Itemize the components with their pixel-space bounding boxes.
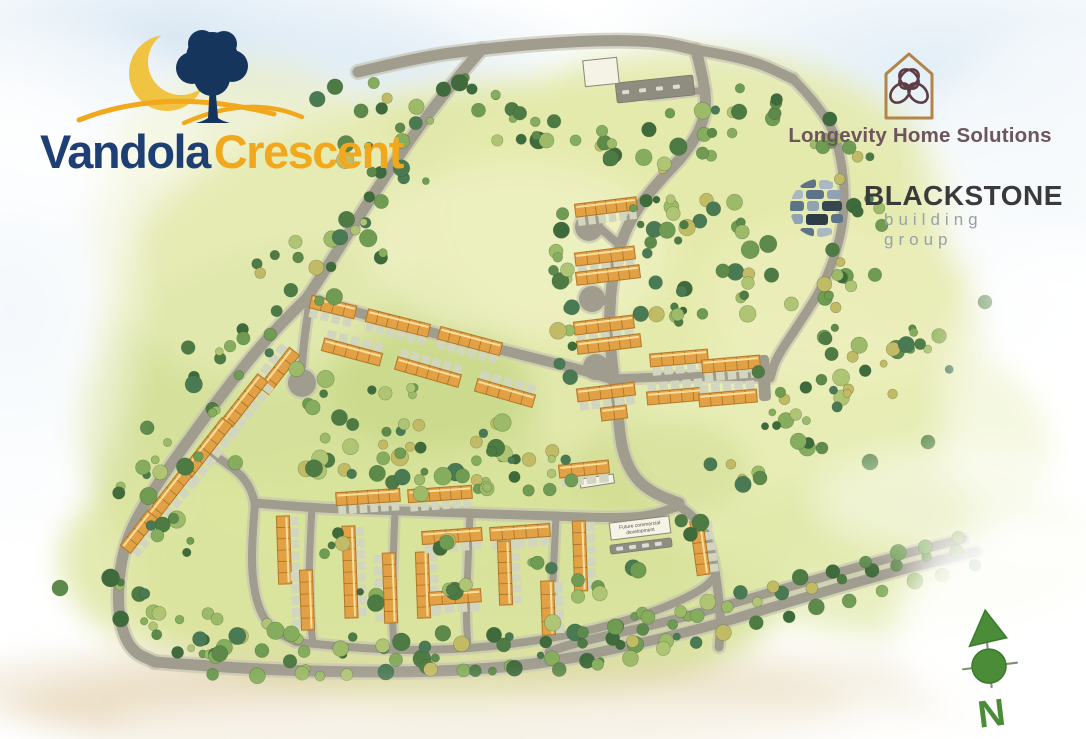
tree (208, 408, 217, 417)
blackstone-subtitle: building group (884, 210, 1058, 250)
driveway (745, 380, 754, 390)
tree (249, 668, 265, 684)
tree (151, 456, 159, 464)
tree (453, 636, 469, 652)
driveway (429, 575, 438, 583)
tree (898, 336, 914, 352)
tree (826, 243, 840, 257)
tree (741, 241, 759, 259)
tree (721, 601, 733, 613)
tree (52, 580, 68, 596)
tree (915, 339, 926, 350)
tree (319, 549, 329, 559)
tree (377, 452, 390, 465)
tree (265, 348, 274, 357)
tree (824, 291, 833, 300)
driveway (431, 501, 439, 511)
tree (819, 332, 832, 345)
tree (642, 122, 657, 137)
tree (659, 222, 676, 239)
tree (470, 436, 482, 448)
tree (228, 455, 243, 470)
tree (817, 277, 832, 292)
tree (426, 117, 433, 124)
tree (350, 225, 360, 235)
tree (187, 537, 194, 544)
tree (876, 585, 888, 597)
driveway (626, 395, 636, 405)
community-wordmark: VandolaCrescent (40, 124, 403, 179)
tree (378, 440, 388, 450)
blackstone-stone-circle-icon (788, 177, 852, 241)
tree (455, 469, 469, 483)
hill-swoosh (184, 107, 302, 123)
tree (532, 131, 541, 140)
driveway (291, 596, 300, 605)
tree (642, 248, 652, 258)
tree (656, 642, 670, 656)
driveway (357, 573, 366, 582)
driveway (579, 401, 589, 411)
tree (317, 370, 334, 387)
tree (706, 202, 720, 216)
tree (832, 269, 844, 281)
driveway (716, 371, 725, 381)
driveway (460, 541, 470, 551)
tree (540, 636, 552, 648)
tree (790, 409, 802, 421)
tree (379, 387, 393, 401)
driveway (578, 216, 586, 226)
tree (653, 196, 660, 203)
tree (446, 584, 458, 596)
tree (182, 548, 191, 557)
tree (694, 102, 711, 119)
tree (553, 222, 569, 238)
tree (522, 453, 536, 467)
tree (374, 194, 388, 208)
tree (193, 631, 208, 646)
stone-mosaic (789, 179, 843, 237)
tree (163, 438, 171, 446)
tree (673, 633, 680, 640)
tree (697, 308, 708, 319)
driveway (338, 505, 346, 515)
tree (716, 264, 730, 278)
tree (775, 387, 785, 397)
driveway (588, 215, 596, 225)
driveway (619, 211, 627, 221)
tree (293, 252, 304, 263)
tree (284, 283, 298, 297)
tree (516, 134, 526, 144)
tree (880, 360, 887, 367)
tree (539, 133, 554, 148)
tree (690, 637, 702, 649)
driveway (699, 384, 708, 394)
longevity-wordmark: Longevity Home Solutions (788, 124, 1052, 148)
tree (675, 606, 687, 618)
tree (674, 237, 682, 245)
driveway (290, 540, 299, 549)
longevity-home-solutions-logo: Longevity Home Solutions (788, 50, 1052, 152)
tree (759, 235, 776, 252)
tree (309, 260, 324, 275)
tree (752, 365, 765, 378)
tree (564, 300, 579, 315)
tree (592, 586, 607, 601)
tree (146, 520, 156, 530)
tree (193, 452, 203, 462)
tree (405, 442, 415, 452)
tree (767, 581, 779, 593)
tree (808, 599, 824, 615)
tree (136, 460, 151, 475)
tree (866, 153, 874, 161)
tree (414, 474, 425, 485)
tree (577, 626, 589, 638)
tree (224, 340, 236, 352)
tree (733, 585, 747, 599)
driveway (512, 595, 521, 603)
tree (825, 347, 838, 360)
site-building (583, 57, 620, 86)
tree (479, 429, 488, 438)
tree (832, 369, 849, 386)
community-name-secondary: Crescent (214, 125, 403, 178)
tree (409, 116, 422, 129)
tree (434, 467, 452, 485)
tree (726, 194, 742, 210)
tree (578, 638, 588, 648)
tree (471, 456, 481, 466)
compass-arrow (965, 608, 1007, 646)
tree (829, 386, 837, 394)
tree (890, 559, 902, 571)
driveway (431, 604, 442, 614)
tree (255, 268, 266, 279)
tree (347, 469, 357, 479)
tree (332, 229, 348, 245)
driveway (457, 603, 468, 613)
tree (704, 458, 717, 471)
driveway (704, 531, 714, 540)
driveway (374, 566, 383, 575)
tree (764, 268, 778, 282)
driveway (424, 544, 434, 554)
tree (424, 662, 438, 676)
driveway (587, 557, 596, 566)
tree (649, 276, 663, 290)
tree (741, 277, 754, 290)
driveway (709, 563, 719, 572)
driveway (391, 501, 399, 511)
tree (459, 578, 472, 591)
driveway (289, 517, 298, 526)
driveway (706, 542, 716, 551)
tree (783, 611, 795, 623)
tree (832, 402, 842, 412)
tree (592, 658, 604, 670)
tree (212, 645, 228, 661)
tree (140, 617, 148, 625)
quatrefoil-knot-icon (887, 66, 932, 107)
tree (792, 569, 808, 585)
driveway (734, 381, 743, 391)
driveway (357, 596, 366, 605)
tree (545, 562, 557, 574)
driveway (356, 550, 365, 559)
tree (392, 633, 410, 651)
tree (888, 389, 898, 399)
tree (851, 337, 867, 353)
driveway (355, 538, 364, 547)
driveway (444, 604, 455, 614)
tree (635, 149, 652, 166)
tree (554, 358, 565, 369)
tree (382, 93, 393, 104)
tree (543, 483, 556, 496)
driveway (739, 369, 748, 379)
tree (640, 194, 653, 207)
community-name-primary: Vandola (40, 125, 210, 178)
driveway (528, 537, 538, 547)
tree (267, 622, 284, 639)
driveway (659, 381, 668, 391)
tree (395, 448, 406, 459)
tree (735, 225, 749, 239)
driveway (585, 522, 594, 531)
driveway (587, 569, 596, 578)
tree (457, 664, 470, 677)
tree (113, 611, 129, 627)
tree (790, 433, 806, 449)
tree (389, 653, 402, 666)
tree (315, 671, 325, 681)
blackstone-name: BLACKSTONE (864, 180, 1063, 212)
tree (348, 632, 357, 641)
tree (816, 374, 827, 385)
tree (415, 442, 426, 453)
driveway (664, 365, 673, 375)
driveway (707, 553, 717, 562)
tree (333, 641, 349, 657)
driveway (682, 379, 691, 389)
townhouse-row (290, 570, 314, 631)
tree (172, 646, 184, 658)
driveway (512, 585, 521, 593)
driveway (512, 574, 521, 582)
driveway (349, 504, 357, 514)
tree (378, 664, 394, 680)
tree (726, 459, 736, 469)
tree (932, 329, 947, 344)
cul-de-sac (583, 354, 609, 380)
tree (560, 263, 574, 277)
tree (152, 606, 166, 620)
tree (168, 513, 178, 523)
tree (305, 460, 322, 477)
tree (707, 128, 717, 138)
tree (255, 644, 269, 658)
tree (531, 556, 545, 570)
tree (753, 471, 767, 485)
tree (842, 594, 856, 608)
driveway (591, 399, 601, 409)
tree (237, 332, 250, 345)
tree (784, 297, 798, 311)
driveway (586, 545, 595, 554)
tree (229, 627, 246, 644)
driveway (586, 474, 596, 484)
tree (731, 104, 747, 120)
longevity-house-icon (788, 50, 1052, 122)
tree (419, 641, 431, 653)
driveway (472, 540, 482, 550)
driveway (727, 370, 736, 380)
tree (506, 660, 522, 676)
driveway (586, 534, 595, 543)
driveway (554, 595, 563, 606)
tree (102, 569, 120, 587)
tree (140, 487, 157, 504)
tree (360, 219, 367, 226)
tree (342, 439, 358, 455)
tree (680, 220, 689, 229)
tree (422, 178, 429, 185)
tree (666, 195, 675, 204)
driveway (722, 382, 731, 392)
tree (211, 613, 223, 625)
tree (552, 663, 566, 677)
blackstone-building-group-logo: BLACKSTONE building group (788, 177, 1058, 241)
driveway (356, 561, 365, 570)
tree (491, 90, 501, 100)
tree (376, 639, 390, 653)
tree (550, 322, 567, 339)
tree (289, 361, 304, 376)
tree (284, 626, 300, 642)
tree (675, 514, 688, 527)
tree (326, 262, 336, 272)
compass-icon: N (942, 596, 1042, 736)
driveway (370, 503, 378, 513)
tree (493, 414, 511, 432)
tree (346, 418, 358, 430)
tree (264, 328, 277, 341)
tree (749, 616, 763, 630)
tree (331, 410, 347, 426)
tree (836, 258, 845, 267)
tree (859, 365, 871, 377)
tree (548, 455, 556, 463)
tree (406, 383, 415, 392)
driveway (291, 562, 300, 571)
driveway (687, 363, 696, 373)
tree (367, 595, 384, 612)
tree (831, 324, 839, 332)
tree (806, 582, 818, 594)
driveway (355, 527, 364, 536)
tree (668, 620, 678, 630)
tree (629, 204, 637, 212)
rendering-canvas: Future commercialdevelopment VandolaCres… (0, 0, 1086, 739)
tree (492, 135, 503, 146)
driveway (381, 502, 389, 512)
tree (320, 390, 328, 398)
driveway (511, 553, 520, 561)
tree (151, 529, 164, 542)
tree (603, 150, 619, 166)
tree (298, 646, 310, 658)
driveway (374, 578, 383, 587)
tree (409, 99, 425, 115)
tree (696, 147, 708, 159)
tree (234, 370, 244, 380)
driveway (711, 383, 720, 393)
tree (367, 386, 376, 395)
compass-north-label: N (975, 692, 1007, 736)
tree (556, 208, 568, 220)
tree (622, 650, 638, 666)
tree (666, 206, 680, 220)
tree (852, 151, 863, 162)
tree (771, 94, 783, 106)
tree (845, 280, 857, 292)
tree (187, 645, 194, 652)
tree (486, 446, 497, 457)
driveway (410, 502, 418, 512)
tree (571, 590, 584, 603)
tree (431, 654, 440, 663)
tree (657, 157, 671, 171)
tree (376, 103, 388, 115)
tree (626, 635, 638, 647)
driveway (453, 499, 461, 509)
tree (283, 655, 297, 669)
tree (711, 106, 720, 115)
driveway (373, 555, 382, 564)
tree (800, 382, 812, 394)
tree (338, 211, 354, 227)
tree (289, 235, 302, 248)
tree (270, 250, 280, 260)
tree (467, 84, 478, 95)
tree (561, 455, 571, 465)
tree (553, 252, 563, 262)
tree (715, 625, 731, 641)
driveway (291, 551, 300, 560)
tree (735, 84, 744, 93)
tree (607, 619, 623, 635)
tree (665, 108, 675, 118)
tree (568, 342, 577, 351)
tree (140, 421, 154, 435)
tree (530, 117, 540, 127)
tree (508, 456, 515, 463)
driveway (290, 528, 299, 537)
tree (513, 106, 527, 120)
tree (910, 328, 918, 336)
tree (690, 609, 704, 623)
tree (326, 288, 343, 305)
driveway (429, 564, 438, 572)
tree (305, 400, 320, 415)
tree (761, 423, 768, 430)
tree (113, 487, 125, 499)
tree (843, 389, 851, 397)
tree (483, 483, 492, 492)
